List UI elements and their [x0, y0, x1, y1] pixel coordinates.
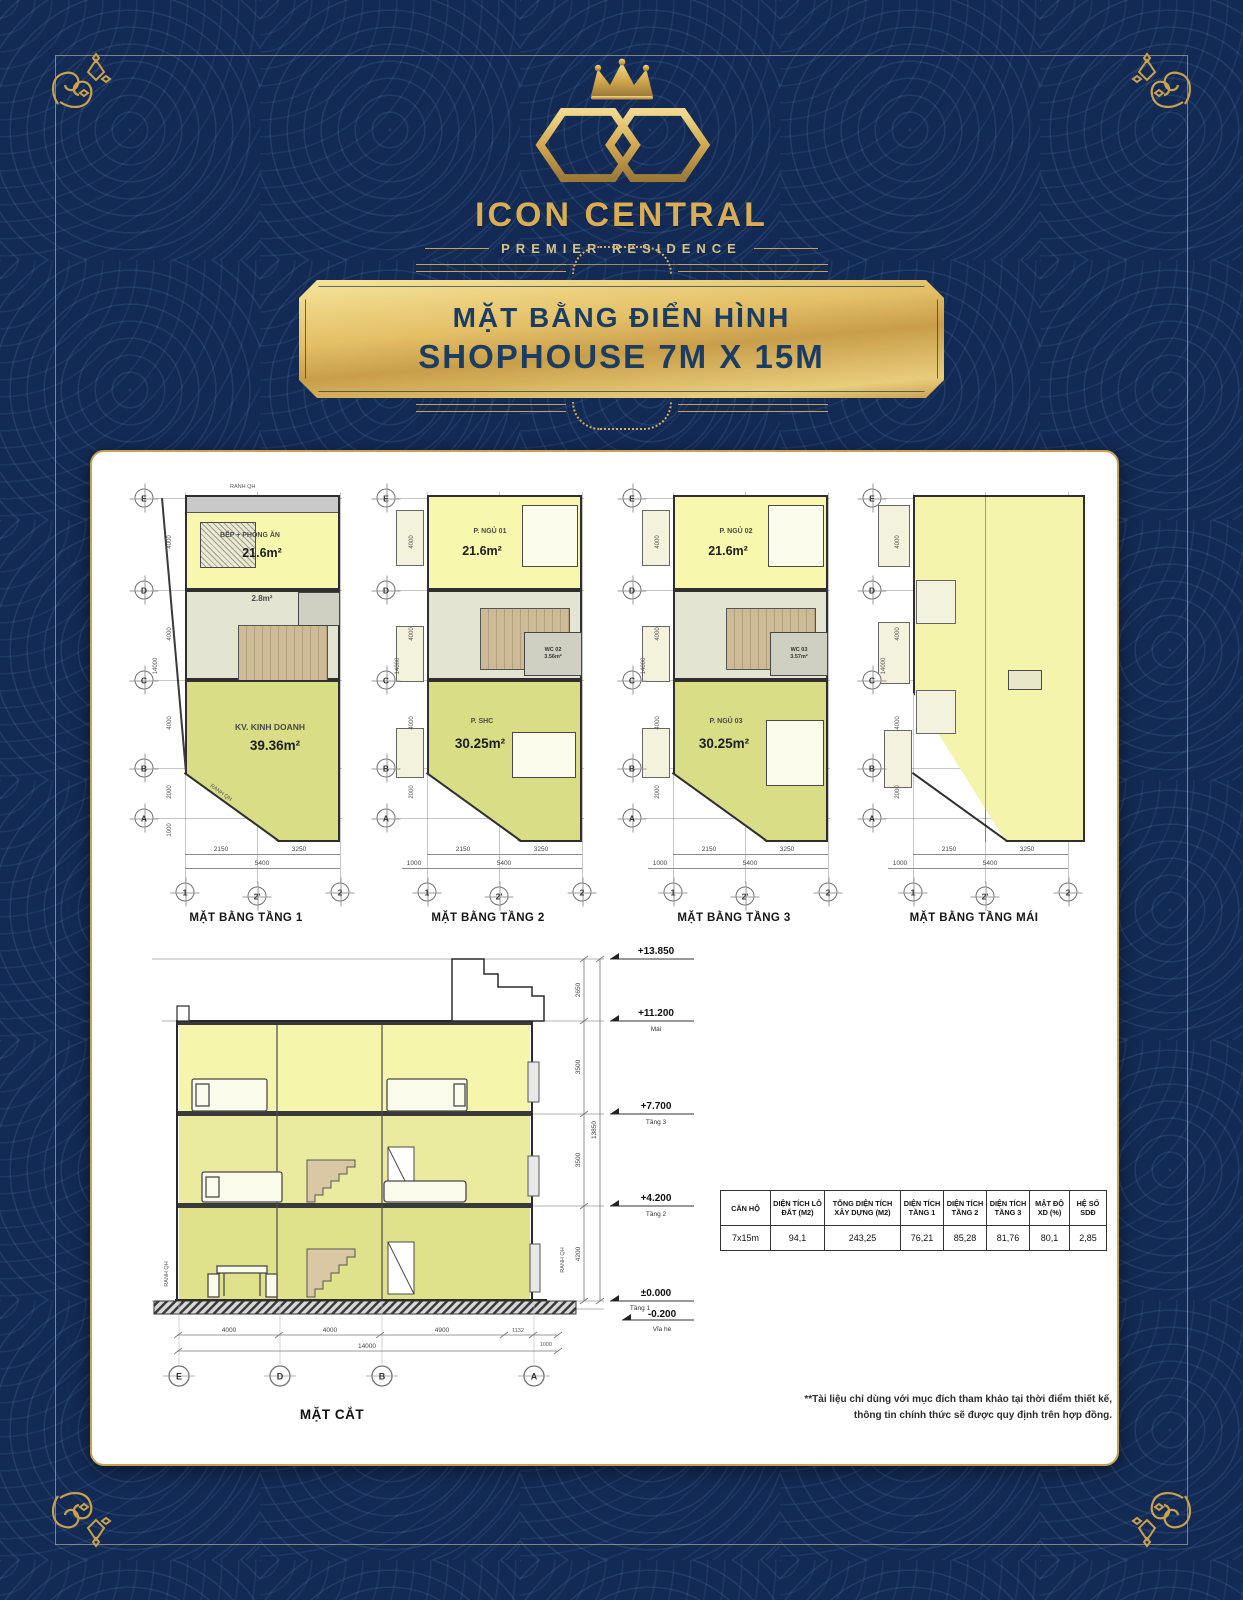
- section-drawing: RANH QH RANH QH 2650 3500 3500 4200 1385…: [132, 944, 712, 1449]
- side-dim: 2000: [409, 785, 415, 798]
- side-dim: 4000: [167, 716, 173, 729]
- dim-label: 3250: [1020, 846, 1034, 853]
- side-dim: 4000: [167, 535, 173, 548]
- plan-caption: MẶT BẰNG TẦNG 1: [130, 912, 362, 924]
- dim-lead-label: 1000: [653, 860, 667, 867]
- side-dim: 4000: [895, 716, 901, 729]
- side-dim: 3500: [575, 1152, 582, 1167]
- side-dim: 4000: [655, 716, 661, 729]
- arc-decor: [572, 246, 672, 274]
- room-area: 30.25m²: [699, 736, 749, 751]
- boundary-label: RANH QH: [560, 1247, 566, 1272]
- dim-label: 3250: [780, 846, 794, 853]
- grid-bubble-B: B: [863, 759, 882, 778]
- grid-bubble-1: 1: [176, 883, 195, 902]
- grid-bubble-C: C: [863, 671, 882, 690]
- decor: [53, 1493, 110, 1546]
- spec-table-header-row: CĂN HỘ DIỆN TÍCH LÔ ĐẤT (M2) TỔNG DIỆN T…: [721, 1191, 1107, 1226]
- dim-total-label: 5400: [255, 860, 269, 867]
- grid-bubble-B: B: [377, 759, 396, 778]
- decor: [177, 1006, 189, 1021]
- bed-icon: [522, 505, 578, 567]
- elevation-value: +4.200: [641, 1193, 672, 1204]
- grid-bubble-E: E: [176, 1372, 182, 1382]
- val-mat-do: 80,1: [1030, 1226, 1070, 1251]
- spec-table: CĂN HỘ DIỆN TÍCH LÔ ĐẤT (M2) TỔNG DIỆN T…: [720, 1190, 1107, 1251]
- grid-bubble-C: C: [377, 671, 396, 690]
- dim-label: 3250: [534, 846, 548, 853]
- elevation-label: Tầng 2: [646, 1209, 667, 1218]
- bay-window: [878, 505, 910, 567]
- side-dim: 3500: [575, 1059, 582, 1074]
- sofa-icon: [512, 732, 576, 778]
- wc-name: WC 02: [545, 647, 562, 654]
- elevation-value: -0.200: [648, 1309, 677, 1320]
- dim-label: 2150: [214, 846, 228, 853]
- poster-page: ICON CENTRAL PREMIER RESIDENCE MẶT BẰNG …: [0, 0, 1243, 1600]
- bed-icon: [766, 720, 824, 786]
- dim-total-label: 5400: [743, 860, 757, 867]
- side-dim: 4000: [655, 535, 661, 548]
- floor-plan-tang-mai: E D C B A 4000 4000 4000 2000 14000 2150…: [858, 480, 1090, 940]
- decor: [610, 1295, 619, 1301]
- monogram-icon: [522, 105, 722, 185]
- grid-bubble-D: D: [135, 581, 154, 600]
- grid-bubble-A: A: [863, 809, 882, 828]
- grid-bubble-A: A: [135, 809, 154, 828]
- dim-lead-label: 1000: [893, 860, 907, 867]
- dline-decor: [427, 854, 582, 855]
- bay-window: [916, 580, 956, 624]
- dline-decor: [185, 854, 340, 855]
- grid-bubble-B: B: [623, 759, 642, 778]
- room-area: 21.6m²: [462, 544, 502, 558]
- grid-bubble-E: E: [135, 489, 154, 508]
- section-caption: MẶT CẮT: [300, 1407, 364, 1422]
- side-dim: 4000: [409, 716, 415, 729]
- grid-bubble-1: 1: [904, 883, 923, 902]
- grid-bubble-2p: 2': [976, 887, 995, 906]
- plan-caption: MẶT BẰNG TẦNG 2: [372, 912, 604, 924]
- plan-caption: MẶT BẰNG TẦNG MÁI: [858, 912, 1090, 924]
- side-dim: 4000: [655, 627, 661, 640]
- val-he-so: 2,85: [1070, 1226, 1107, 1251]
- val-dt-lo-dat: 94,1: [771, 1226, 825, 1251]
- stairs-icon: [238, 625, 328, 687]
- oline-decor: [416, 264, 566, 272]
- decor: CĂN HỘ DIỆN TÍCH LÔ ĐẤT (M2) TỔNG DIỆN T…: [721, 1191, 1107, 1251]
- col-tong-dtxd: TỔNG DIỆN TÍCH XÂY DỰNG (M2): [825, 1191, 901, 1226]
- decor: [594, 65, 600, 71]
- side-dim: 4000: [409, 627, 415, 640]
- bay-window: [884, 730, 912, 788]
- floor-plan-tang-2: WC 02 3.56m² P. NGỦ 01 21.6m² P. SHC 30.…: [372, 480, 604, 940]
- grid-bubble-A: A: [623, 809, 642, 828]
- gl-decor: [340, 492, 341, 884]
- dline-decor: [888, 868, 1068, 869]
- val-tong-dtxd: 243,25: [825, 1226, 901, 1251]
- chair-icon: [266, 1274, 277, 1297]
- decor: [1133, 1493, 1190, 1546]
- banner-ornament-top: [0, 246, 1243, 274]
- grid-bubble-D: D: [277, 1372, 284, 1382]
- floor-plan-tang-1: RANH QH RANH QH BẾP + PHÒNG ĂN 21.6m² 2.…: [130, 480, 362, 940]
- elevation-label: Vỉa hè: [653, 1325, 672, 1333]
- grid-bubble-E: E: [863, 489, 882, 508]
- side-dim-total: 14000: [641, 658, 647, 675]
- dim-label: 4900: [435, 1327, 450, 1334]
- grid-bubble-E: E: [377, 489, 396, 508]
- grid-bubble-E: E: [623, 489, 642, 508]
- col-dt-tang-1: DIỆN TÍCH TẦNG 1: [901, 1191, 944, 1226]
- room-name: P. NGỦ 03: [710, 718, 743, 725]
- dim-total-label: 5400: [497, 860, 511, 867]
- decor: [618, 59, 625, 66]
- balcony-ledge: [396, 728, 424, 778]
- grid-bubble-2: 2: [1059, 883, 1078, 902]
- gl-decor: [828, 492, 829, 884]
- side-dim: 4000: [895, 627, 901, 640]
- oline-decor: [678, 264, 828, 272]
- val-dt-tang-1: 76,21: [901, 1226, 944, 1251]
- decor: [196, 1084, 209, 1106]
- room-area: 21.6m²: [242, 546, 282, 560]
- spec-table-data-row: 7x15m 94,1 243,25 76,21 85,28 81,76 80,1…: [721, 1226, 1107, 1251]
- wc-icon: [298, 592, 340, 626]
- decor: [610, 1015, 619, 1021]
- room-name: BẾP + PHÒNG ĂN: [220, 532, 280, 539]
- side-dim: 4000: [895, 535, 901, 548]
- floor-plans-row: RANH QH RANH QH BẾP + PHÒNG ĂN 21.6m² 2.…: [92, 480, 1117, 940]
- dim-label: 3250: [292, 846, 306, 853]
- decor: [622, 1314, 631, 1320]
- dim-label: 2150: [456, 846, 470, 853]
- brand-logo: ICON CENTRAL PREMIER RESIDENCE: [0, 58, 1243, 265]
- decor: [528, 1062, 540, 1292]
- side-dim: 2000: [167, 785, 173, 798]
- decor: [610, 1200, 619, 1206]
- crown-icon: [579, 58, 665, 100]
- dim-label: 4000: [222, 1327, 237, 1334]
- room-area: 30.25m²: [455, 736, 505, 751]
- dline-decor: [648, 868, 828, 869]
- balcony-ledge: [642, 728, 670, 778]
- elevation-label: Tầng 3: [646, 1117, 667, 1126]
- boundary-label: RANH QH: [164, 1261, 170, 1286]
- grid-bubble-D: D: [623, 581, 642, 600]
- side-dim: 1000: [167, 823, 173, 836]
- decor: [528, 1156, 539, 1196]
- drawings-card: RANH QH RANH QH BẾP + PHÒNG ĂN 21.6m² 2.…: [90, 450, 1119, 1466]
- elevation-value: +13.850: [638, 946, 675, 957]
- col-dt-tang-2: DIỆN TÍCH TẦNG 2: [944, 1191, 987, 1226]
- col-dt-tang-3: DIỆN TÍCH TẦNG 3: [987, 1191, 1030, 1226]
- grid-bubble-2: 2: [819, 883, 838, 902]
- lot-boundary-line: [162, 498, 187, 771]
- side-dim-total: 14000: [881, 658, 887, 675]
- roof-fold-line: [985, 495, 986, 842]
- dline-decor: [913, 854, 1068, 855]
- side-dim: 4000: [409, 535, 415, 548]
- corner-flourish-icon: [48, 1488, 114, 1554]
- dim-total-label: 14000: [358, 1343, 376, 1350]
- dline-decor: [402, 868, 582, 869]
- decor: [610, 1108, 619, 1114]
- dline-decor: [673, 854, 828, 855]
- grid-bubble-2p: 2': [490, 887, 509, 906]
- decor: [454, 1084, 465, 1106]
- elevation-value: +7.700: [641, 1101, 672, 1112]
- wc-icon: WC 02 3.56m²: [524, 632, 582, 676]
- elevation-value: +11.200: [638, 1008, 674, 1019]
- val-dt-tang-2: 85,28: [944, 1226, 987, 1251]
- dim-label: 2150: [702, 846, 716, 853]
- decor: [177, 1111, 532, 1116]
- ground-hatch: [154, 1301, 576, 1314]
- elevation-marker-icon: [610, 953, 631, 1320]
- kitchen-counter-icon: [187, 497, 338, 513]
- oline-decor: [416, 404, 566, 412]
- room-name: P. NGỦ 01: [474, 528, 507, 535]
- disclaimer-line-2: thông tin chính thức sẽ được quy định tr…: [642, 1408, 1112, 1424]
- dline-decor: [185, 868, 340, 869]
- disclaimer-note: **Tài liệu chỉ dùng với mục đích tham kh…: [642, 1392, 1112, 1423]
- grid-bubble-B: B: [135, 759, 154, 778]
- decor: [642, 65, 648, 71]
- sofa-icon: [384, 1181, 466, 1202]
- dim-label: 4000: [323, 1327, 338, 1334]
- boundary-label: RANH QH: [230, 484, 255, 490]
- decor: [177, 1203, 532, 1208]
- plan-caption: MẶT BẰNG TẦNG 3: [618, 912, 850, 924]
- chair-icon: [208, 1274, 219, 1297]
- room-name: KV. KINH DOANH: [235, 722, 305, 732]
- side-dim: 2000: [895, 785, 901, 798]
- side-dim: 4200: [575, 1246, 582, 1261]
- side-dim-total: 13850: [591, 1121, 598, 1139]
- col-can-ho: CĂN HỘ: [721, 1191, 771, 1226]
- grid-bubble-A: A: [377, 809, 396, 828]
- grid-bubble-2: 2: [573, 883, 592, 902]
- decor: [610, 953, 619, 959]
- grid-bubble-2p: 2': [248, 887, 267, 906]
- grid-bubble-A: A: [531, 1372, 538, 1382]
- room-area: 39.36m²: [250, 738, 300, 753]
- dim-label: 2150: [942, 846, 956, 853]
- col-he-so: HỆ SỐ SDĐ: [1070, 1191, 1107, 1226]
- val-dt-tang-3: 81,76: [987, 1226, 1030, 1251]
- wc-icon: WC 03 3.57m²: [770, 632, 828, 676]
- elevation-value: ±0.000: [641, 1288, 672, 1299]
- bay-window: [916, 690, 956, 734]
- grid-bubble-D: D: [377, 581, 396, 600]
- corner-flourish-icon: [1129, 1488, 1195, 1554]
- grid-bubble-1: 1: [418, 883, 437, 902]
- side-dim: 2000: [655, 785, 661, 798]
- skylight-hatch-icon: [1008, 670, 1042, 690]
- floor-plan-tang-3: WC 03 3.57m² P. NGỦ 02 21.6m² P. NGỦ 03 …: [618, 480, 850, 940]
- grid-bubble-C: C: [623, 671, 642, 690]
- table-icon: [217, 1266, 267, 1273]
- wc-area: 3.56m²: [544, 654, 561, 661]
- decor: [169, 1366, 544, 1386]
- roof-parapet: [452, 959, 544, 1021]
- grid-bubble-2p: 2': [736, 887, 755, 906]
- room-name: P. NGỦ 02: [720, 528, 753, 535]
- bed-icon: [768, 505, 824, 567]
- decor: [1129, 1488, 1195, 1554]
- side-dim: 4000: [167, 627, 173, 640]
- grid-bubble-2: 2: [331, 883, 350, 902]
- dim-lead-label: 1000: [407, 860, 421, 867]
- oline-decor: [678, 404, 828, 412]
- grid-bubble-B: B: [379, 1372, 386, 1382]
- banner-ornament-bottom: [0, 402, 1243, 430]
- room-area: 21.6m²: [708, 544, 748, 558]
- decor: [48, 1488, 114, 1554]
- decor: [609, 112, 705, 178]
- dim-label: 1132: [512, 1328, 524, 1334]
- title-plaque: MẶT BẰNG ĐIỂN HÌNH SHOPHOUSE 7M X 15M: [299, 280, 944, 398]
- side-dim-total: 14000: [395, 658, 401, 675]
- col-dt-lo-dat: DIỆN TÍCH LÔ ĐẤT (M2): [771, 1191, 825, 1226]
- bay-window: [878, 622, 910, 684]
- grid-bubble-1: 1: [664, 883, 683, 902]
- dim-label: 1000: [540, 1342, 552, 1348]
- room-name: P. SHC: [471, 718, 493, 725]
- val-can-ho: 7x15m: [721, 1226, 771, 1251]
- arc-decor: [572, 402, 672, 430]
- elevation-label: Mái: [651, 1026, 661, 1033]
- dim-total-label: 5400: [983, 860, 997, 867]
- side-dim: 2650: [575, 982, 582, 997]
- decor: [206, 1177, 219, 1197]
- side-dim-total: 14000: [153, 658, 159, 675]
- col-mat-do: MẬT ĐỘ XD (%): [1030, 1191, 1070, 1226]
- gl-decor: [582, 492, 583, 884]
- grid-bubble-C: C: [135, 671, 154, 690]
- decor: [591, 96, 653, 100]
- grid-bubble-D: D: [863, 581, 882, 600]
- disclaimer-line-1: **Tài liệu chỉ dùng với mục đích tham kh…: [642, 1392, 1112, 1408]
- decor: [530, 1244, 540, 1292]
- decor: [528, 1062, 539, 1102]
- plaque-inner-border: [305, 286, 938, 392]
- decor: RANH QH RANH QH 2650 3500 3500 4200 1385…: [132, 944, 712, 1449]
- brand-name: ICON CENTRAL: [0, 196, 1243, 235]
- wc-area: 3.57m²: [790, 654, 807, 661]
- wc-name: WC 03: [791, 647, 808, 654]
- dining-table-icon: [200, 522, 256, 568]
- wc-area: 2.8m²: [252, 594, 273, 603]
